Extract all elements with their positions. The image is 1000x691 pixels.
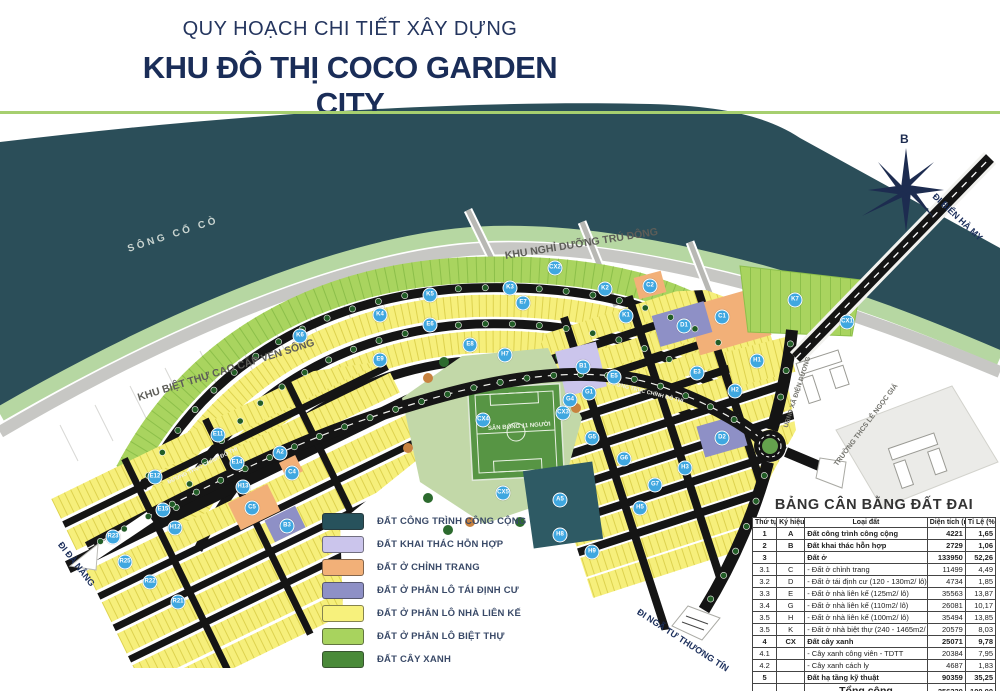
cell-landtype: Đất công trình công cộng bbox=[805, 528, 928, 540]
cell-symbol: E bbox=[777, 588, 805, 600]
cell-symbol bbox=[777, 552, 805, 564]
legend-label: ĐẤT Ở PHÂN LÔ NHÀ LIÊN KẾ bbox=[377, 608, 521, 619]
cell-area: 20579 bbox=[927, 624, 965, 636]
table-row: 4.2 - Cây xanh cách ly 4687 1,83 bbox=[753, 660, 996, 672]
cell-index: 2 bbox=[753, 540, 777, 552]
cell-landtype: Đất ở bbox=[805, 552, 928, 564]
block-marker: H2 bbox=[728, 384, 743, 399]
legend-item: ĐẤT Ở PHÂN LÔ BIỆT THỰ bbox=[322, 628, 526, 645]
legend: ĐẤT CÔNG TRÌNH CÔNG CỘNG ĐẤT KHAI THÁC H… bbox=[322, 513, 526, 674]
cell-symbol: K bbox=[777, 624, 805, 636]
block-marker: R23 bbox=[106, 530, 121, 545]
legend-swatch bbox=[322, 628, 364, 645]
block-marker: D1 bbox=[677, 319, 692, 334]
cell-percent: 52,26 bbox=[965, 552, 995, 564]
block-marker: R25 bbox=[118, 555, 133, 570]
cell-symbol: CX bbox=[777, 636, 805, 648]
cell-area: 90359 bbox=[927, 672, 965, 684]
cell-index: 4 bbox=[753, 636, 777, 648]
legend-item: ĐẤT Ở PHÂN LÔ TÁI ĐỊNH CƯ bbox=[322, 582, 526, 599]
table-row: 3.3 E - Đất ở nhà liên kế (125m2/ lô) 35… bbox=[753, 588, 996, 600]
block-marker: H9 bbox=[585, 545, 600, 560]
cell-symbol: D bbox=[777, 576, 805, 588]
cell-landtype: - Đất ở nhà liên kế (125m2/ lô) bbox=[805, 588, 928, 600]
block-marker: E9 bbox=[373, 353, 388, 368]
legend-swatch bbox=[322, 536, 364, 553]
cell-percent: 7,95 bbox=[965, 648, 995, 660]
block-marker: C1 bbox=[715, 310, 730, 325]
cell-area: 26081 bbox=[927, 600, 965, 612]
table-header-row: Thứ tự Ký hiệu Loại đất Diện tích (m2) T… bbox=[753, 518, 996, 528]
cell-symbol: H bbox=[777, 612, 805, 624]
cell-symbol bbox=[777, 660, 805, 672]
legend-item: ĐẤT KHAI THÁC HỖN HỢP bbox=[322, 536, 526, 553]
block-marker: A2 bbox=[273, 446, 288, 461]
block-marker: C4 bbox=[285, 466, 300, 481]
legend-label: ĐẤT Ở CHỈNH TRANG bbox=[377, 562, 480, 573]
cell-area: 25071 bbox=[927, 636, 965, 648]
block-marker: K7 bbox=[788, 293, 803, 308]
cell-landtype: Đất khai thác hỗn hợp bbox=[805, 540, 928, 552]
block-marker: K3 bbox=[503, 281, 518, 296]
cell-landtype: Tổng cộng bbox=[805, 684, 928, 691]
block-marker: E6 bbox=[423, 318, 438, 333]
block-marker: CX2 bbox=[548, 261, 563, 276]
legend-swatch bbox=[322, 582, 364, 599]
cell-symbol: A bbox=[777, 528, 805, 540]
block-marker: H3 bbox=[678, 461, 693, 476]
block-marker: H1 bbox=[750, 354, 765, 369]
block-marker: K6 bbox=[293, 329, 308, 344]
cell-percent: 4,49 bbox=[965, 564, 995, 576]
table-row: 4.1 - Cây xanh công viên - TDTT 20384 7,… bbox=[753, 648, 996, 660]
block-marker: CX4 bbox=[476, 413, 491, 428]
legend-swatch bbox=[322, 651, 364, 668]
cell-percent: 9,78 bbox=[965, 636, 995, 648]
cell-area: 35494 bbox=[927, 612, 965, 624]
block-marker: E15 bbox=[156, 503, 171, 518]
block-marker: E11 bbox=[211, 428, 226, 443]
cell-area: 35563 bbox=[927, 588, 965, 600]
compass-north-label: B bbox=[900, 132, 909, 146]
cell-area: 4687 bbox=[927, 660, 965, 672]
roundabout bbox=[754, 430, 786, 462]
table-row: 1 A Đất công trình công cộng 4221 1,65 bbox=[753, 528, 996, 540]
block-marker: E7 bbox=[516, 296, 531, 311]
col-header: Tỉ Lệ (%) bbox=[965, 518, 995, 528]
cell-landtype: - Đất ở tái định cư (120 - 130m2/ lô) bbox=[805, 576, 928, 588]
cell-area: 11499 bbox=[927, 564, 965, 576]
table-row: 3 Đất ở 133950 52,26 bbox=[753, 552, 996, 564]
cell-landtype: - Đất ở nhà biệt thự (240 - 1465m2/ lô) bbox=[805, 624, 928, 636]
cell-symbol: C bbox=[777, 564, 805, 576]
table-row: 3.4 G - Đất ở nhà liên kế (110m2/ lô) 26… bbox=[753, 600, 996, 612]
cell-symbol: G bbox=[777, 600, 805, 612]
cell-landtype: - Đất ở nhà liên kế (100m2/ lô) bbox=[805, 612, 928, 624]
block-marker: K5 bbox=[423, 288, 438, 303]
cell-symbol bbox=[777, 672, 805, 684]
block-marker: CX5 bbox=[496, 486, 511, 501]
cell-area: 2729 bbox=[927, 540, 965, 552]
block-marker: K1 bbox=[619, 309, 634, 324]
cell-landtype: Đất hạ tầng kỹ thuật bbox=[805, 672, 928, 684]
col-header: Loại đất bbox=[805, 518, 928, 528]
table-row: 5 Đất hạ tầng kỹ thuật 90359 35,25 bbox=[753, 672, 996, 684]
title-divider bbox=[0, 111, 1000, 114]
cell-area: 133950 bbox=[927, 552, 965, 564]
block-marker: E12 bbox=[148, 470, 163, 485]
block-marker: H5 bbox=[633, 501, 648, 516]
cell-landtype: - Đất ở nhà liên kế (110m2/ lô) bbox=[805, 600, 928, 612]
cell-percent: 1,65 bbox=[965, 528, 995, 540]
block-marker: C5 bbox=[245, 501, 260, 516]
cell-percent: 13,85 bbox=[965, 612, 995, 624]
cell-percent: 13,87 bbox=[965, 588, 995, 600]
block-marker: H8 bbox=[553, 528, 568, 543]
block-marker: E5 bbox=[607, 370, 622, 385]
table-row: 3.5 K - Đất ở nhà biệt thự (240 - 1465m2… bbox=[753, 624, 996, 636]
cell-landtype: Đất cây xanh bbox=[805, 636, 928, 648]
cell-percent: 1,85 bbox=[965, 576, 995, 588]
cell-index: 3.5 bbox=[753, 624, 777, 636]
legend-label: ĐẤT CÔNG TRÌNH CÔNG CỘNG bbox=[377, 516, 526, 527]
land-balance-panel: BẢNG CÂN BẰNG ĐẤT ĐAI Thứ tự Ký hiệu Loạ… bbox=[752, 497, 996, 691]
cell-index: 5 bbox=[753, 672, 777, 684]
cell-index: 3.2 bbox=[753, 576, 777, 588]
cell-percent: 100,00 bbox=[965, 684, 995, 691]
cell-index: 3.4 bbox=[753, 600, 777, 612]
cell-index: 3.5 bbox=[753, 612, 777, 624]
cell-percent: 1,83 bbox=[965, 660, 995, 672]
block-marker: C2 bbox=[643, 279, 658, 294]
block-marker: R22 bbox=[143, 575, 158, 590]
block-marker: G6 bbox=[617, 452, 632, 467]
table-row: 4 CX Đất cây xanh 25071 9,78 bbox=[753, 636, 996, 648]
land-balance-table: Thứ tự Ký hiệu Loại đất Diện tích (m2) T… bbox=[752, 517, 996, 691]
block-marker: A5 bbox=[553, 493, 568, 508]
table-row: 3.1 C - Đất ở chỉnh trang 11499 4,49 bbox=[753, 564, 996, 576]
block-marker: G7 bbox=[648, 478, 663, 493]
block-marker: D2 bbox=[715, 431, 730, 446]
cell-index: 4.2 bbox=[753, 660, 777, 672]
legend-label: ĐẤT Ở PHÂN LÔ BIỆT THỰ bbox=[377, 631, 505, 642]
col-header: Ký hiệu bbox=[777, 518, 805, 528]
cell-symbol bbox=[777, 648, 805, 660]
legend-swatch bbox=[322, 559, 364, 576]
block-marker: B1 bbox=[576, 360, 591, 375]
cell-area: 256330 bbox=[927, 684, 965, 691]
block-marker: E8 bbox=[463, 338, 478, 353]
cell-index: 4.1 bbox=[753, 648, 777, 660]
cell-landtype: - Cây xanh cách ly bbox=[805, 660, 928, 672]
table-row: 3.5 H - Đất ở nhà liên kế (100m2/ lô) 35… bbox=[753, 612, 996, 624]
block-marker: K4 bbox=[373, 308, 388, 323]
football-field bbox=[468, 384, 565, 481]
plan-subtitle: QUY HOẠCH CHI TIẾT XÂY DỰNG bbox=[140, 18, 560, 41]
cell-landtype: - Đất ở chỉnh trang bbox=[805, 564, 928, 576]
legend-item: ĐẤT Ở CHỈNH TRANG bbox=[322, 559, 526, 576]
legend-swatch bbox=[322, 605, 364, 622]
cell-index: 3.3 bbox=[753, 588, 777, 600]
coco-garden-city-master-plan: QUY HOẠCH CHI TIẾT XÂY DỰNG KHU ĐÔ THỊ C… bbox=[0, 0, 1000, 691]
cell-symbol: B bbox=[777, 540, 805, 552]
cell-percent: 8,03 bbox=[965, 624, 995, 636]
legend-item: ĐẤT CÂY XANH bbox=[322, 651, 526, 668]
table-title: BẢNG CÂN BẰNG ĐẤT ĐAI bbox=[752, 497, 996, 513]
legend-swatch bbox=[322, 513, 364, 530]
school-area bbox=[836, 386, 998, 508]
cell-percent: 1,06 bbox=[965, 540, 995, 552]
cell-landtype: - Cây xanh công viên - TDTT bbox=[805, 648, 928, 660]
block-marker: G5 bbox=[585, 431, 600, 446]
block-marker: G1 bbox=[582, 386, 597, 401]
table-row: 3.2 D - Đất ở tái định cư (120 - 130m2/ … bbox=[753, 576, 996, 588]
block-marker: CX3 bbox=[556, 406, 571, 421]
legend-label: ĐẤT Ở PHÂN LÔ TÁI ĐỊNH CƯ bbox=[377, 585, 519, 596]
block-marker: H7 bbox=[498, 348, 513, 363]
cell-symbol bbox=[777, 684, 805, 691]
block-marker: E14 bbox=[230, 456, 245, 471]
col-header: Thứ tự bbox=[753, 518, 777, 528]
table-row: 2 B Đất khai thác hỗn hợp 2729 1,06 bbox=[753, 540, 996, 552]
block-marker: B3 bbox=[280, 519, 295, 534]
cell-area: 4221 bbox=[927, 528, 965, 540]
block-marker: K2 bbox=[598, 282, 613, 297]
legend-item: ĐẤT CÔNG TRÌNH CÔNG CỘNG bbox=[322, 513, 526, 530]
legend-label: ĐẤT CÂY XANH bbox=[377, 654, 451, 665]
block-marker: E3 bbox=[690, 366, 705, 381]
cell-index: 1 bbox=[753, 528, 777, 540]
block-marker: R21 bbox=[171, 595, 186, 610]
cell-index: 3.1 bbox=[753, 564, 777, 576]
block-marker: H13 bbox=[236, 480, 251, 495]
cell-area: 20384 bbox=[927, 648, 965, 660]
col-header: Diện tích (m2) bbox=[927, 518, 965, 528]
cell-index: 3 bbox=[753, 552, 777, 564]
cell-index bbox=[753, 684, 777, 691]
block-marker: CX1 bbox=[840, 315, 855, 330]
legend-label: ĐẤT KHAI THÁC HỖN HỢP bbox=[377, 539, 503, 550]
table-row: Tổng cộng 256330 100,00 bbox=[753, 684, 996, 691]
legend-item: ĐẤT Ở PHÂN LÔ NHÀ LIÊN KẾ bbox=[322, 605, 526, 622]
block-marker: H12 bbox=[168, 521, 183, 536]
cell-area: 4734 bbox=[927, 576, 965, 588]
cell-percent: 10,17 bbox=[965, 600, 995, 612]
cell-percent: 35,25 bbox=[965, 672, 995, 684]
